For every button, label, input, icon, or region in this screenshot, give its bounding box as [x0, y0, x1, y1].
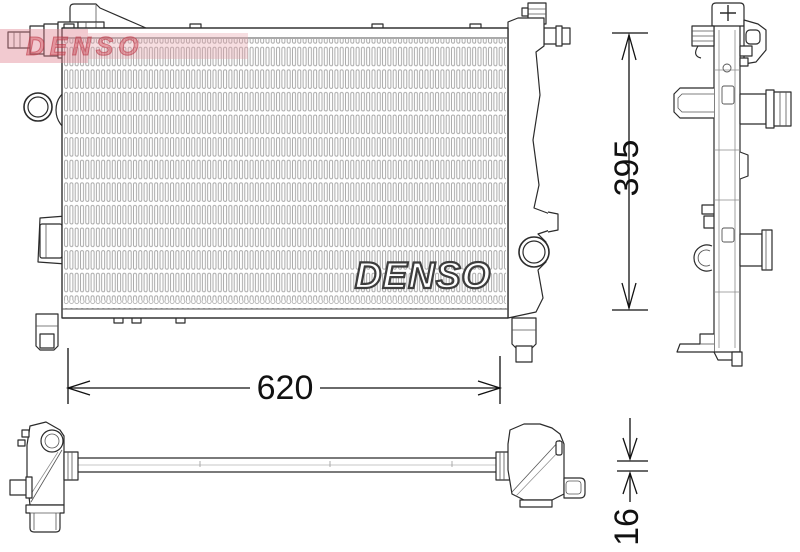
core-scallop-row: [64, 300, 506, 309]
side-body: [714, 24, 740, 352]
bottom-core-strip: [78, 458, 498, 472]
front-right-tank: [508, 3, 570, 362]
right-mounting-foot: [512, 318, 536, 348]
width-dimension-label: 620: [250, 370, 320, 406]
side-bottom-bracket: [677, 334, 714, 352]
denso-core-logo: DENSO: [350, 254, 496, 298]
bottom-right-pin: [556, 441, 562, 455]
bottom-right-tank: [496, 424, 585, 507]
side-bottom-stub: [732, 352, 742, 366]
side-left-tabs: [702, 205, 714, 228]
side-small-hook: [696, 46, 701, 58]
thickness-dimension-label: 16: [609, 499, 645, 552]
right-tank-body: [508, 18, 550, 318]
radiator-technical-drawing: DENSO DENSO 620 395 16: [0, 0, 800, 552]
side-hook-clip: [694, 245, 712, 271]
bottom-left-port: [41, 430, 63, 452]
thickness-dimension-lines: [617, 418, 648, 502]
core-bottom-tabs: [114, 318, 185, 323]
bottom-left-coupler: [64, 452, 78, 480]
height-dimension-label: 395: [609, 130, 645, 206]
side-left-mount-bracket: [674, 88, 714, 118]
radiator-bottom-view: [10, 422, 585, 532]
radiator-side-view: [674, 3, 791, 366]
bottom-right-foot: [520, 500, 552, 507]
bottom-left-foot: [26, 505, 64, 532]
denso-watermark: DENSO: [26, 33, 143, 59]
side-lower-pipe: [740, 230, 772, 270]
bottom-left-pipe: [10, 480, 28, 495]
bottom-left-tank: [10, 422, 78, 532]
left-bracket: [40, 224, 62, 258]
right-bracket-tab: [548, 212, 558, 232]
side-upper-pipe: [740, 90, 791, 128]
